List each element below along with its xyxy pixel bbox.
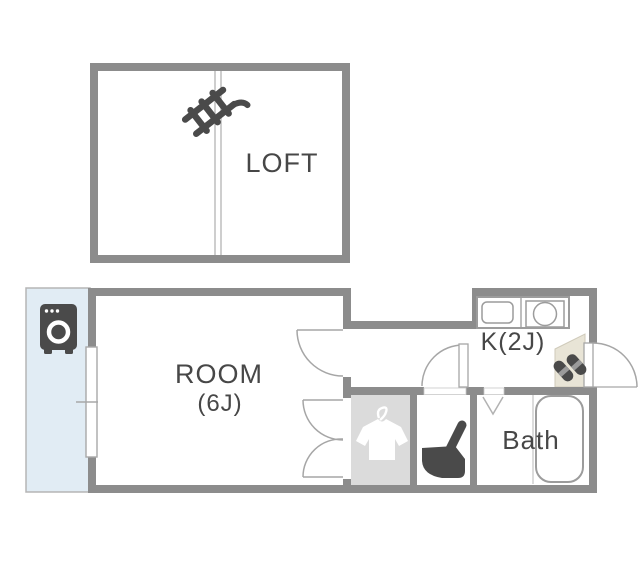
room-size-label: (6J) [140,392,300,416]
bath-label: Bath [461,427,601,453]
kitchen-label: K(2J) [443,330,583,355]
kitchen-counter [477,297,569,328]
floor-plan: LOFT ROOM (6J) K(2J) Bath [0,0,640,565]
toilet-icon [422,425,465,478]
loft-label: LOFT [212,150,352,177]
bath-folding-door [483,388,504,414]
closet-double-door-swing [303,400,343,477]
room-door-swing [297,330,343,376]
washing-machine-icon [40,304,77,354]
floor-plan-drawing [0,0,640,565]
room-label: ROOM [139,361,299,388]
entrance-door-swing [584,343,637,387]
